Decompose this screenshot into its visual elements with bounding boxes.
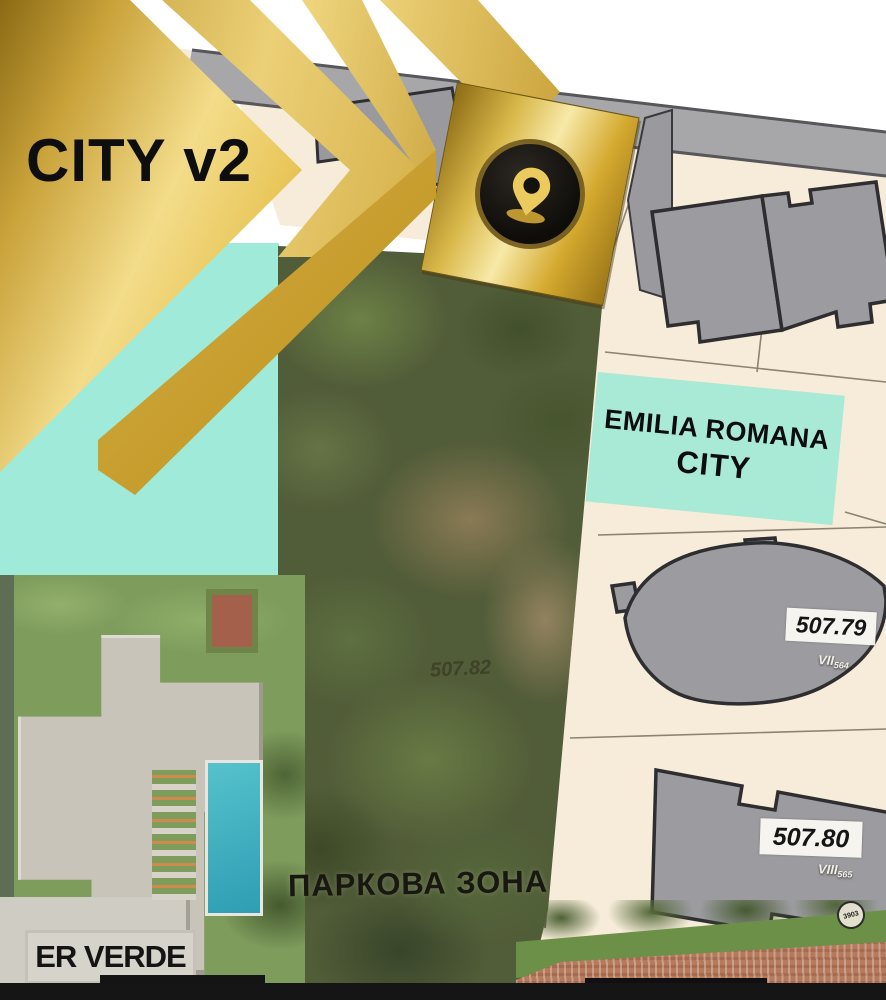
block-roman: VIII	[818, 861, 838, 877]
elevation-badge-507-80: 507.80	[759, 818, 862, 858]
swimming-pool	[205, 760, 263, 916]
elevation-badge-507-79: 507.79	[785, 608, 877, 646]
building-pair-topright	[652, 182, 886, 342]
bottom-black-bar	[0, 983, 886, 1000]
er-verde-label-plate: ER VERDE	[28, 933, 193, 981]
lounge-chairs	[152, 770, 196, 900]
block-number: 565	[837, 869, 852, 880]
er-verde-label: ER VERDE	[35, 939, 185, 975]
block-label-vii-564: VII564	[818, 652, 850, 671]
project-label-line2: CITY	[675, 444, 753, 487]
site-plan-image: EMILIA ROMANA CITY ПАРКОВА ЗОНА 507.82 5…	[0, 0, 886, 1000]
garden-structure	[212, 595, 252, 647]
location-marker-tile[interactable]	[420, 82, 639, 306]
block-roman: VII	[818, 652, 835, 668]
location-pin-icon	[466, 130, 595, 259]
block-label-viii-565: VIII565	[818, 861, 853, 879]
arrow-title: CITY v2	[26, 126, 252, 195]
project-label-box: EMILIA ROMANA CITY	[586, 372, 845, 525]
park-zone-label: ПАРКОВА ЗОНА	[288, 864, 549, 905]
block-number: 564	[833, 660, 849, 671]
park-elevation-label: 507.82	[429, 656, 491, 682]
